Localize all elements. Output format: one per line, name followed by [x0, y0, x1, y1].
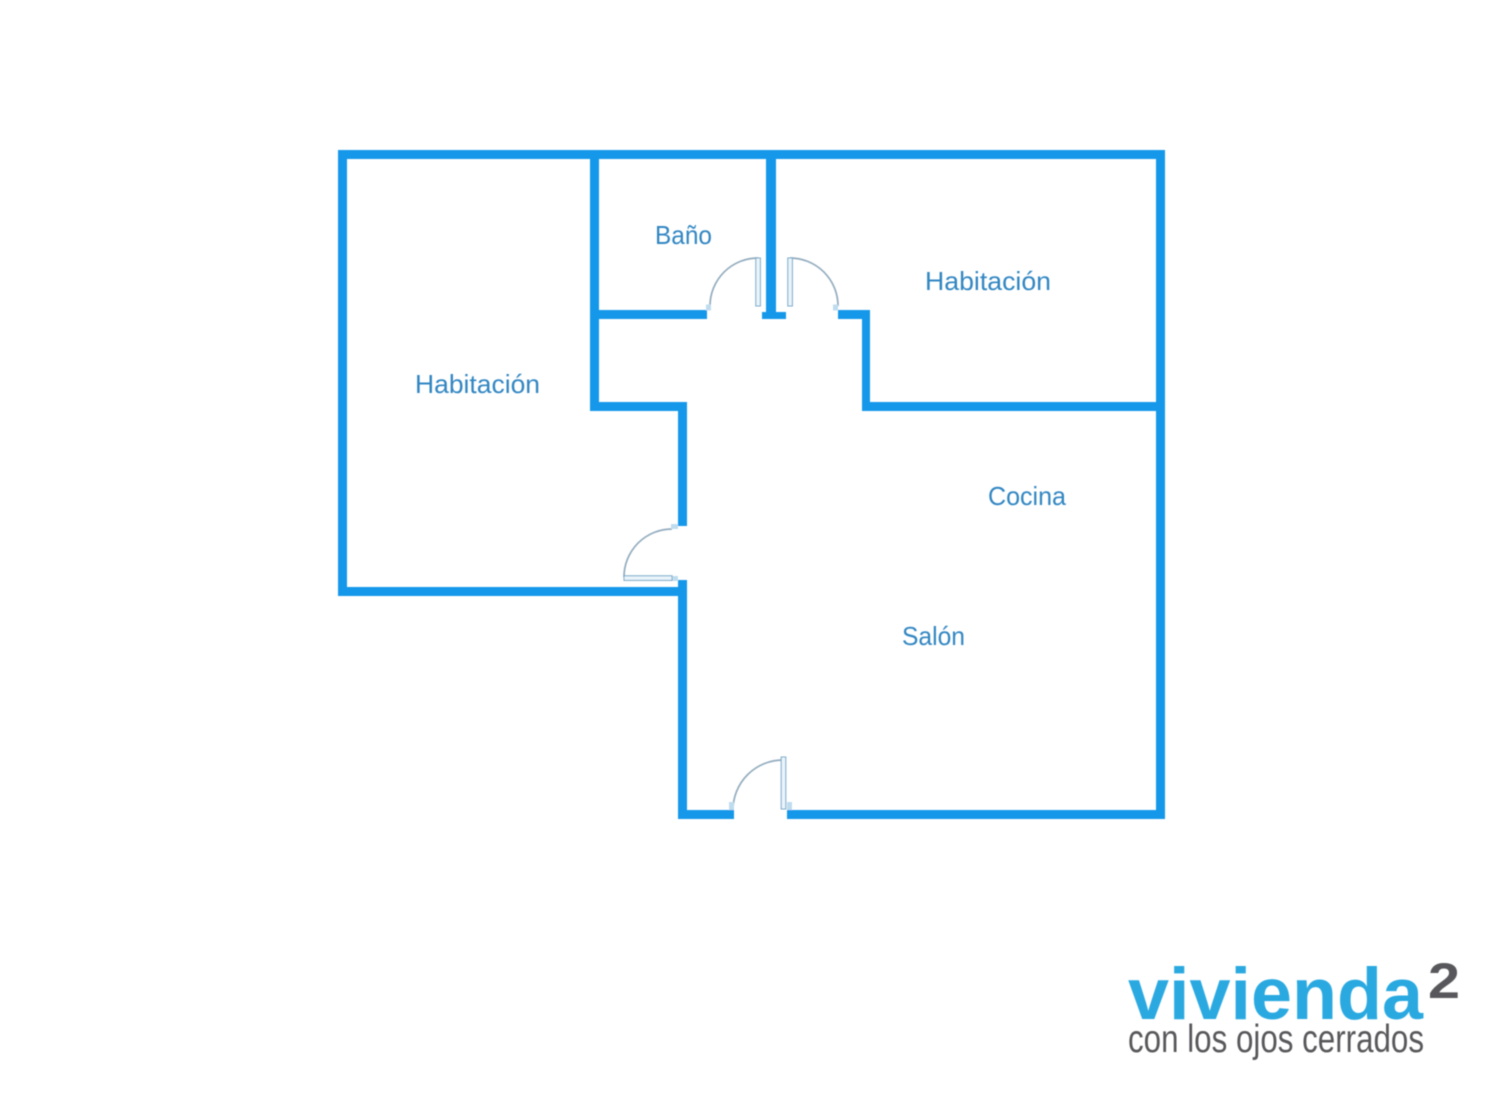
svg-text:Cocina: Cocina: [988, 481, 1067, 511]
svg-text:Salón: Salón: [902, 621, 965, 651]
svg-text:Baño: Baño: [655, 220, 712, 250]
svg-text:Habitación: Habitación: [415, 369, 540, 399]
svg-text:Habitación: Habitación: [925, 266, 1051, 296]
svg-text:2: 2: [1428, 953, 1460, 1009]
svg-text:con los ojos cerrados: con los ojos cerrados: [1128, 1018, 1424, 1061]
